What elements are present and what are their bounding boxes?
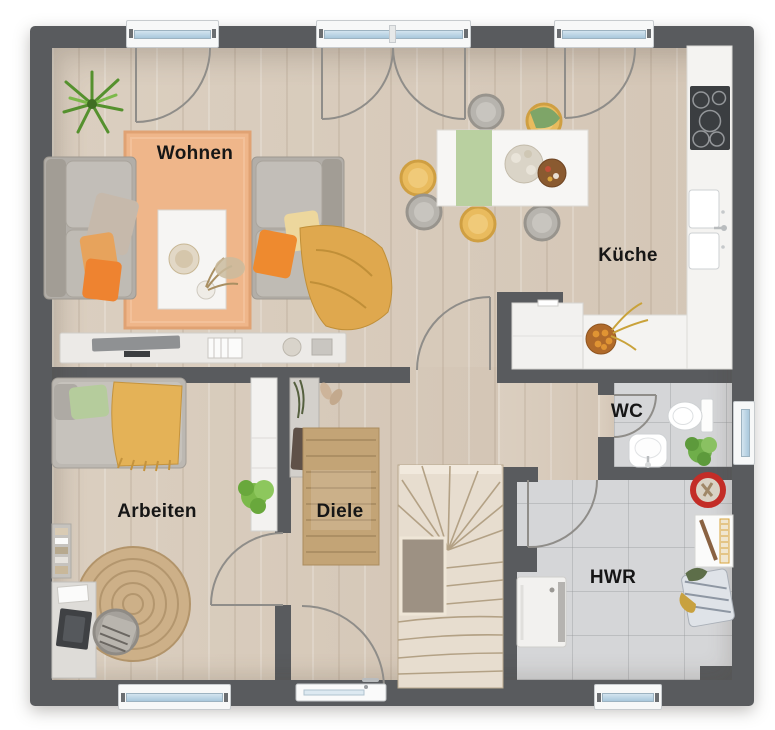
decor-bowl-icon xyxy=(283,338,301,356)
bucket-icon xyxy=(693,475,723,505)
books-icon xyxy=(208,338,242,358)
tall-cabinet xyxy=(238,378,277,531)
entrance-door xyxy=(296,678,386,701)
sink-basin-icon xyxy=(689,190,719,228)
bookshelf xyxy=(52,524,71,578)
room-label-wc: WC xyxy=(611,401,643,423)
room-label-wohnen: Wohnen xyxy=(157,143,233,165)
dining-set xyxy=(401,95,588,241)
desk-chair xyxy=(94,610,138,654)
tv-lowboard xyxy=(60,333,346,363)
room-label-hwr: HWR xyxy=(590,567,636,589)
table-runner-icon xyxy=(456,130,492,206)
floor-plan: Wohnen Küche Arbeiten Diele WC HWR xyxy=(0,0,775,730)
door-arc-entrance xyxy=(302,606,384,688)
furniture-layer xyxy=(0,0,775,730)
papers-icon xyxy=(57,585,88,604)
door-arc-terrace-double-r xyxy=(393,48,465,119)
door-arc-arbeiten xyxy=(211,533,283,605)
desk xyxy=(52,582,96,678)
fridge xyxy=(512,300,583,369)
bowl-icon xyxy=(538,159,566,187)
stair-landing-carpet xyxy=(401,538,445,614)
heating-unit xyxy=(517,577,566,647)
room-label-arbeiten: Arbeiten xyxy=(117,501,196,523)
pillow-orange xyxy=(82,258,123,302)
door-arc-hwr xyxy=(528,480,597,547)
sofa-left xyxy=(44,157,140,302)
room-label-kueche: Küche xyxy=(598,245,658,267)
door-handle-icon xyxy=(362,678,379,682)
room-label-diele: Diele xyxy=(317,501,364,523)
wc-plant-icon xyxy=(685,437,717,466)
door-arc-terrace-left xyxy=(136,48,210,122)
daybed xyxy=(52,378,186,471)
yellow-blanket xyxy=(112,382,182,466)
utility-shelf xyxy=(695,515,733,567)
sink-basin-icon xyxy=(689,233,719,269)
door-arc-living-hall xyxy=(417,297,490,370)
mustard-blanket xyxy=(300,226,392,330)
plant-icon xyxy=(64,72,122,132)
kitchen-counter xyxy=(583,46,732,369)
pillow-green xyxy=(68,384,109,420)
vase-icon xyxy=(197,281,215,299)
laundry-basket xyxy=(674,563,735,629)
door-arc-terrace-double-l xyxy=(322,48,393,119)
toilet-icon xyxy=(668,399,713,432)
hall-runner-rug xyxy=(303,428,379,565)
staircase xyxy=(398,465,503,688)
door-arc-terrace-kitchen xyxy=(565,48,635,118)
flower-centerpiece-icon xyxy=(505,145,543,183)
sofa-right xyxy=(252,157,392,330)
wc-sink-icon xyxy=(629,434,667,468)
